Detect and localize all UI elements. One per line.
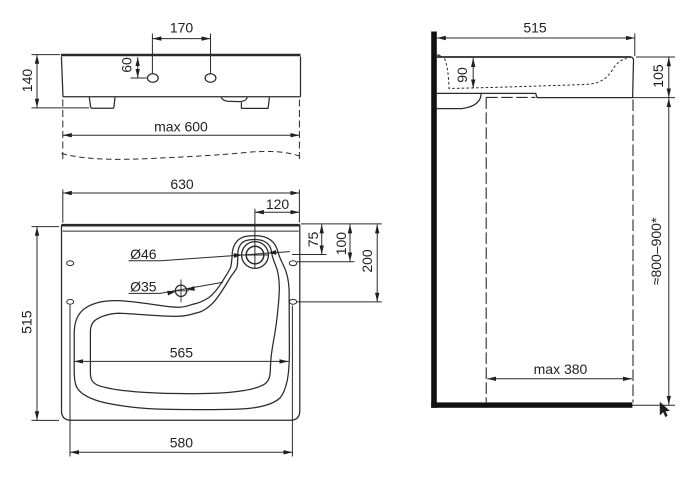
svg-text:580: 580 bbox=[170, 435, 194, 451]
svg-text:max 380: max 380 bbox=[534, 361, 588, 377]
svg-text:515: 515 bbox=[19, 310, 35, 334]
svg-text:Ø46: Ø46 bbox=[130, 246, 157, 262]
svg-text:170: 170 bbox=[170, 20, 194, 36]
svg-text:630: 630 bbox=[170, 176, 194, 192]
svg-text:90: 90 bbox=[454, 67, 470, 83]
svg-text:≈800–900*: ≈800–900* bbox=[648, 217, 664, 285]
svg-text:200: 200 bbox=[359, 249, 375, 273]
svg-text:max 600: max 600 bbox=[154, 118, 208, 134]
svg-text:565: 565 bbox=[170, 344, 194, 360]
svg-text:120: 120 bbox=[266, 196, 290, 212]
svg-text:100: 100 bbox=[333, 232, 349, 256]
svg-text:60: 60 bbox=[118, 57, 134, 73]
svg-text:515: 515 bbox=[523, 20, 547, 36]
svg-text:105: 105 bbox=[650, 64, 666, 88]
svg-text:Ø35: Ø35 bbox=[130, 279, 157, 295]
svg-text:140: 140 bbox=[19, 69, 35, 93]
svg-text:75: 75 bbox=[305, 232, 321, 248]
